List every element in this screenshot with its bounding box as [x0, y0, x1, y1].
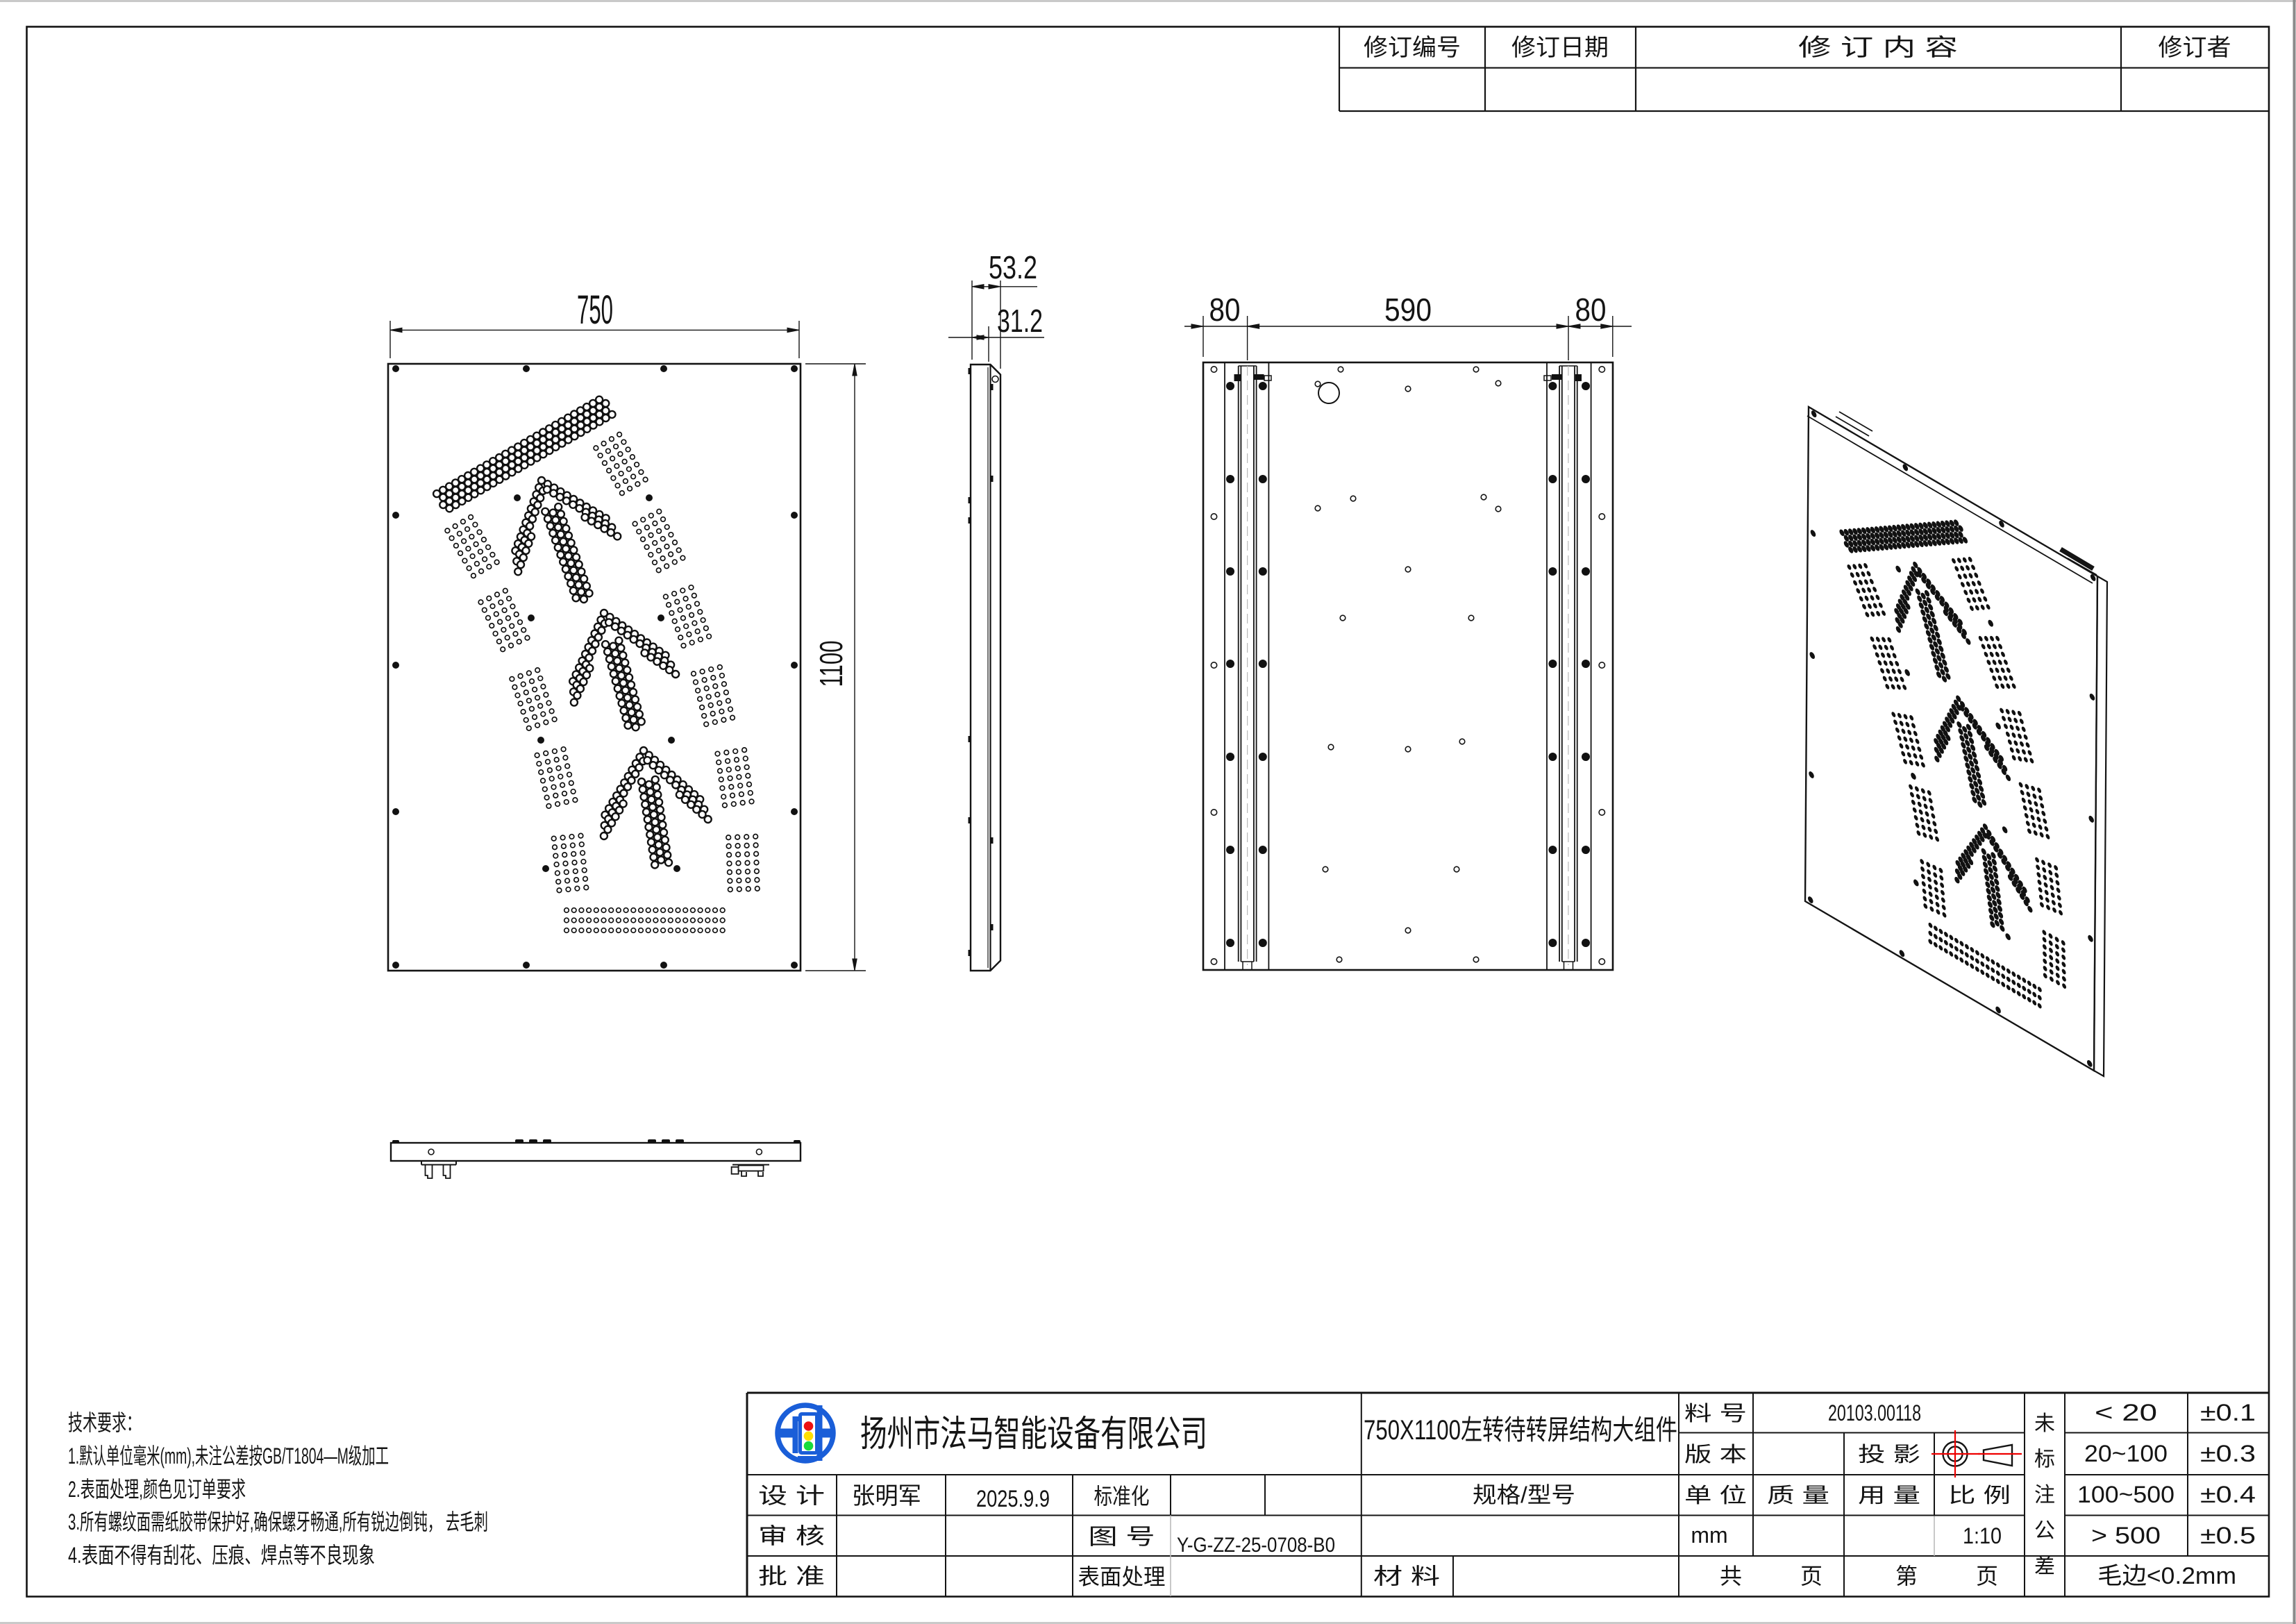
svg-text:规格/型号: 规格/型号 — [1473, 1482, 1575, 1507]
svg-text:未: 未 — [2034, 1412, 2055, 1435]
svg-text:图 号: 图 号 — [1089, 1524, 1155, 1549]
svg-text:公: 公 — [2034, 1520, 2055, 1543]
svg-text:< 20: < 20 — [2095, 1400, 2157, 1426]
svg-text:80: 80 — [1575, 292, 1607, 328]
svg-text:1:10: 1:10 — [1963, 1523, 2002, 1548]
svg-text:批 准: 批 准 — [758, 1564, 825, 1589]
svg-text:页: 页 — [1800, 1564, 1822, 1589]
svg-text:mm: mm — [1691, 1523, 1727, 1548]
svg-text:3.所有螺纹面需纸胶带保护好,确保螺牙畅通,所有锐边倒钝，: 3.所有螺纹面需纸胶带保护好,确保螺牙畅通,所有锐边倒钝， 去毛刺 — [68, 1509, 488, 1534]
svg-text:53.2: 53.2 — [989, 249, 1037, 285]
svg-text:技术要求：: 技术要求： — [68, 1410, 141, 1435]
svg-text:20~100: 20~100 — [2084, 1441, 2168, 1467]
svg-text:共: 共 — [1720, 1564, 1742, 1589]
svg-text:590: 590 — [1384, 292, 1432, 328]
svg-text:修订编号: 修订编号 — [1364, 35, 1461, 61]
svg-text:扬州市法马智能设备有限公司: 扬州市法马智能设备有限公司 — [860, 1414, 1207, 1455]
svg-text:差: 差 — [2034, 1555, 2055, 1578]
svg-text:表面处理: 表面处理 — [1078, 1564, 1166, 1589]
svg-text:比 例: 比 例 — [1948, 1484, 2011, 1507]
svg-text:750: 750 — [577, 287, 613, 333]
svg-text:±0.4: ±0.4 — [2200, 1482, 2256, 1508]
svg-text:> 500: > 500 — [2091, 1523, 2161, 1549]
svg-text:料 号: 料 号 — [1684, 1403, 1747, 1425]
svg-text:修订者: 修订者 — [2159, 35, 2231, 61]
svg-text:修订日期: 修订日期 — [1511, 35, 1609, 61]
svg-text:版 本: 版 本 — [1684, 1443, 1747, 1466]
svg-text:张明军: 张明军 — [852, 1483, 921, 1509]
svg-text:用 量: 用 量 — [1858, 1484, 1920, 1507]
svg-text:Y-G-ZZ-25-0708-B0: Y-G-ZZ-25-0708-B0 — [1177, 1534, 1335, 1557]
svg-text:单 位: 单 位 — [1684, 1484, 1747, 1507]
svg-text:2.表面处理,颜色见订单要求: 2.表面处理,颜色见订单要求 — [68, 1477, 246, 1502]
svg-text:1.默认单位毫米(mm),未注公差按GB/T1804—M级加: 1.默认单位毫米(mm),未注公差按GB/T1804—M级加工 — [68, 1443, 389, 1468]
svg-text:材 料: 材 料 — [1373, 1564, 1440, 1589]
svg-text:20103.00118: 20103.00118 — [1828, 1400, 1921, 1425]
svg-text:1100: 1100 — [813, 641, 849, 687]
svg-text:±0.5: ±0.5 — [2200, 1523, 2256, 1549]
svg-text:质 量: 质 量 — [1767, 1484, 1829, 1507]
svg-text:投 影: 投 影 — [1858, 1443, 1920, 1466]
svg-text:标: 标 — [2034, 1448, 2055, 1471]
svg-text:80: 80 — [1209, 292, 1241, 328]
svg-text:毛边<0.2mm: 毛边<0.2mm — [2097, 1563, 2236, 1589]
svg-text:页: 页 — [1976, 1564, 1998, 1589]
svg-text:审 核: 审 核 — [758, 1523, 825, 1548]
svg-text:750X1100左转待转屏结构大组件: 750X1100左转待转屏结构大组件 — [1364, 1415, 1677, 1446]
svg-text:第: 第 — [1895, 1564, 1918, 1589]
svg-text:注: 注 — [2034, 1484, 2055, 1507]
svg-text:4.表面不得有刮花、压痕、焊点等不良现象: 4.表面不得有刮花、压痕、焊点等不良现象 — [68, 1543, 375, 1568]
svg-text:2025.9.9: 2025.9.9 — [976, 1486, 1050, 1512]
svg-text:±0.1: ±0.1 — [2200, 1400, 2256, 1426]
svg-text:100~500: 100~500 — [2077, 1482, 2175, 1508]
svg-text:31.2: 31.2 — [997, 303, 1043, 339]
svg-text:标准化: 标准化 — [1094, 1484, 1150, 1509]
svg-text:±0.3: ±0.3 — [2200, 1441, 2256, 1467]
svg-text:修 订 内 容: 修 订 内 容 — [1798, 35, 1958, 61]
svg-text:设 计: 设 计 — [758, 1483, 825, 1508]
